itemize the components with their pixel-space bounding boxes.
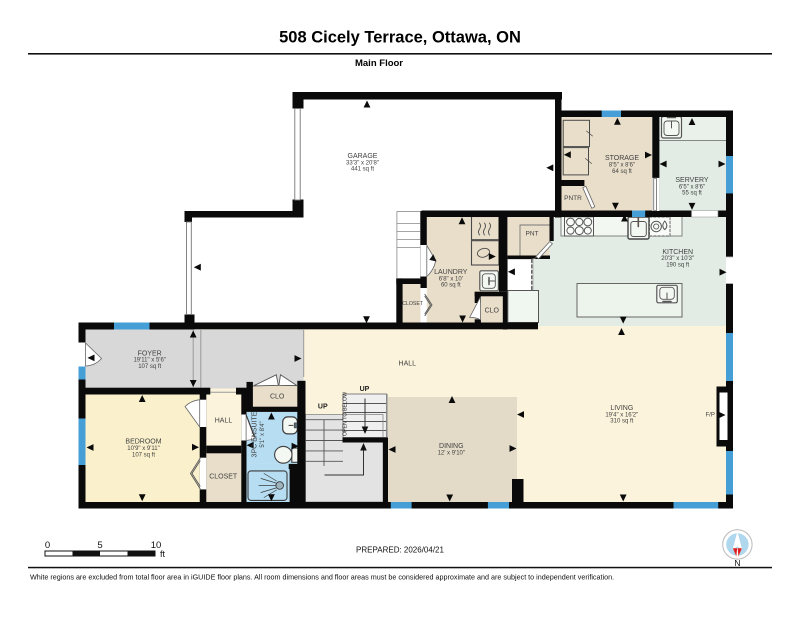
svg-text:LAUNDRY: LAUNDRY xyxy=(434,269,468,276)
svg-text:6'5" x 8'6": 6'5" x 8'6" xyxy=(679,184,705,190)
svg-text:F/P: F/P xyxy=(706,413,715,419)
svg-text:White regions are excluded fro: White regions are excluded from total fl… xyxy=(30,573,614,582)
svg-text:CLO: CLO xyxy=(485,307,500,314)
svg-text:3PC ENSUITE: 3PC ENSUITE xyxy=(252,411,259,457)
svg-text:N: N xyxy=(734,558,740,568)
svg-text:5: 5 xyxy=(97,540,102,551)
svg-text:107 sq ft: 107 sq ft xyxy=(132,452,155,458)
svg-text:SERVERY: SERVERY xyxy=(675,177,709,184)
svg-text:64 sq ft: 64 sq ft xyxy=(612,169,632,175)
svg-text:FOYER: FOYER xyxy=(138,350,162,357)
svg-text:HALL: HALL xyxy=(399,361,417,368)
svg-text:310 sq ft: 310 sq ft xyxy=(610,419,633,425)
svg-text:33'3" x 20'8": 33'3" x 20'8" xyxy=(346,160,379,166)
svg-text:STORAGE: STORAGE xyxy=(605,155,639,162)
svg-text:PNTR: PNTR xyxy=(564,195,582,202)
svg-text:6'8" x 10': 6'8" x 10' xyxy=(439,276,463,282)
svg-text:508 Cicely Terrace, Ottawa, ON: 508 Cicely Terrace, Ottawa, ON xyxy=(279,29,521,47)
svg-text:60 sq ft: 60 sq ft xyxy=(441,283,461,289)
svg-text:190 sq ft: 190 sq ft xyxy=(666,263,689,269)
svg-text:GARAGE: GARAGE xyxy=(348,153,378,160)
svg-text:PNT: PNT xyxy=(526,231,539,238)
svg-text:20'3" x 10'3": 20'3" x 10'3" xyxy=(661,256,694,262)
svg-text:19'11" x 5'6": 19'11" x 5'6" xyxy=(133,358,165,364)
svg-text:LIVING: LIVING xyxy=(610,405,633,412)
svg-text:UP: UP xyxy=(360,386,370,393)
svg-text:HALL: HALL xyxy=(215,418,233,425)
svg-text:Main Floor: Main Floor xyxy=(355,58,403,69)
svg-text:CLOSET: CLOSET xyxy=(402,301,424,307)
svg-text:UP: UP xyxy=(318,404,328,411)
svg-text:107 sq ft: 107 sq ft xyxy=(138,364,161,370)
svg-text:0: 0 xyxy=(45,540,50,551)
svg-text:5'1" x 8'4": 5'1" x 8'4" xyxy=(260,421,266,447)
svg-text:19'4" x 16'2": 19'4" x 16'2" xyxy=(605,412,638,418)
svg-text:KITCHEN: KITCHEN xyxy=(662,249,693,256)
svg-text:ft: ft xyxy=(160,549,166,559)
svg-text:8'5" x 8'6": 8'5" x 8'6" xyxy=(609,163,635,169)
svg-text:CLO: CLO xyxy=(270,394,285,401)
svg-text:55 sq ft: 55 sq ft xyxy=(682,191,702,197)
svg-text:12' x 9'10": 12' x 9'10" xyxy=(438,450,465,456)
svg-text:DINING: DINING xyxy=(439,443,464,450)
svg-text:10'9" x 9'11": 10'9" x 9'11" xyxy=(127,446,159,452)
svg-text:CLOSET: CLOSET xyxy=(209,473,238,480)
svg-text:BEDROOM: BEDROOM xyxy=(125,439,161,446)
svg-text:PREPARED: 2026/04/21: PREPARED: 2026/04/21 xyxy=(356,546,444,555)
svg-text:441 sq ft: 441 sq ft xyxy=(351,167,374,173)
svg-text:OPEN TO BELOW: OPEN TO BELOW xyxy=(342,392,348,436)
